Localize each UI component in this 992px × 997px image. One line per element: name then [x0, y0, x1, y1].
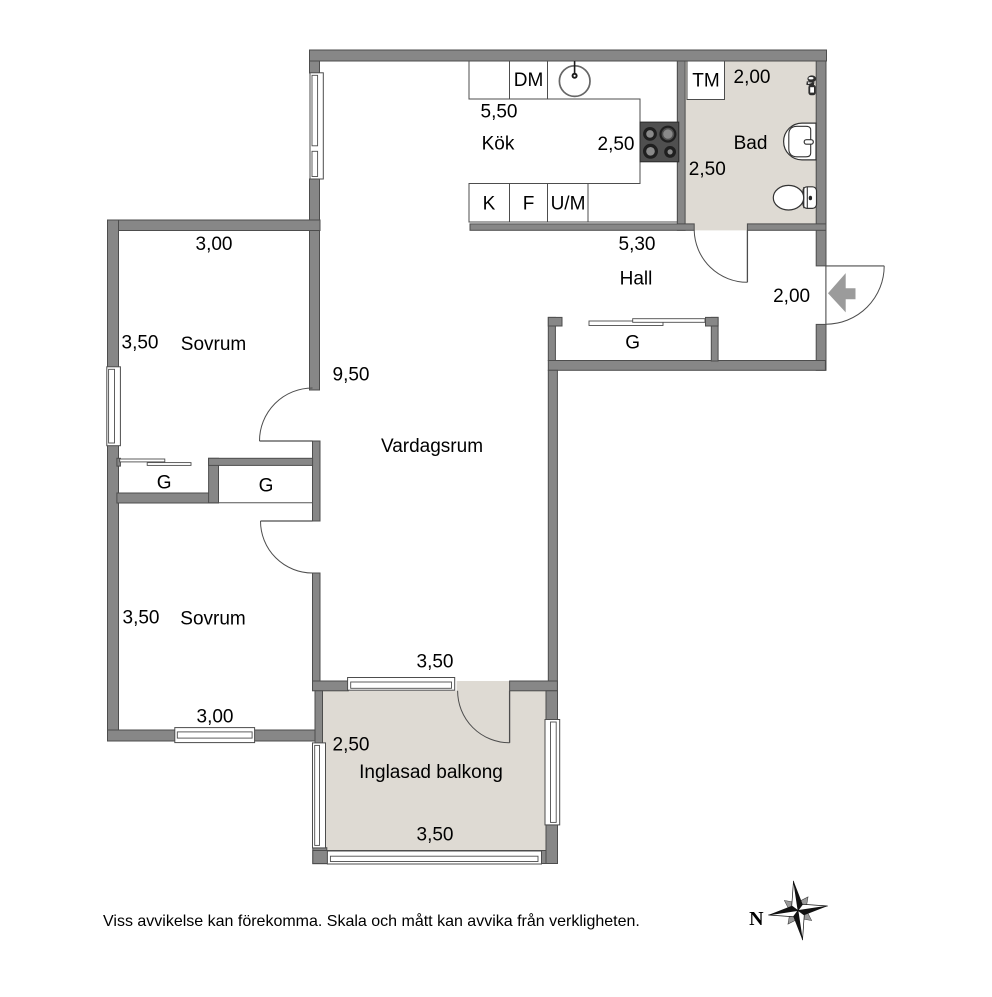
svg-text:Hall: Hall	[620, 269, 653, 290]
svg-text:3,50: 3,50	[123, 608, 160, 629]
svg-text:2,50: 2,50	[333, 735, 370, 756]
svg-text:5,50: 5,50	[481, 102, 518, 123]
svg-text:2,00: 2,00	[734, 67, 771, 88]
svg-text:2,50: 2,50	[689, 159, 726, 180]
svg-text:3,50: 3,50	[417, 652, 454, 673]
svg-text:3,50: 3,50	[122, 333, 159, 354]
svg-text:Viss avvikelse kan förekomma.: Viss avvikelse kan förekomma. Skala och …	[103, 912, 640, 930]
svg-text:G: G	[259, 476, 274, 497]
svg-text:Vardagsrum: Vardagsrum	[381, 436, 483, 457]
svg-text:3,00: 3,00	[197, 707, 234, 728]
svg-text:Sovrum: Sovrum	[181, 334, 246, 355]
svg-text:DM: DM	[514, 70, 544, 91]
svg-text:Bad: Bad	[734, 133, 768, 154]
svg-text:U/M: U/M	[551, 194, 586, 215]
svg-text:G: G	[157, 472, 172, 493]
svg-text:Kök: Kök	[482, 134, 515, 155]
svg-text:Sovrum: Sovrum	[180, 609, 245, 630]
svg-text:5,30: 5,30	[619, 234, 656, 255]
svg-text:3,00: 3,00	[196, 234, 233, 255]
svg-text:9,50: 9,50	[333, 365, 370, 386]
svg-text:N: N	[749, 908, 764, 930]
svg-text:F: F	[523, 194, 535, 215]
svg-text:3,50: 3,50	[417, 825, 454, 846]
svg-text:2,00: 2,00	[773, 286, 810, 307]
svg-text:Inglasad balkong: Inglasad balkong	[359, 762, 503, 783]
svg-text:K: K	[483, 194, 496, 215]
svg-text:G: G	[625, 333, 640, 354]
svg-text:TM: TM	[692, 71, 719, 92]
svg-text:2,50: 2,50	[598, 134, 635, 155]
